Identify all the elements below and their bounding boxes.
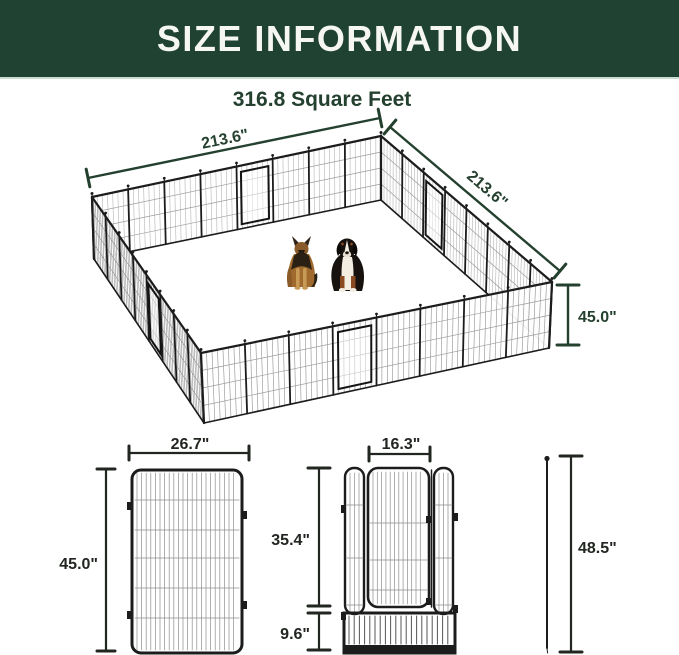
door-height-label: 35.4" xyxy=(271,532,310,549)
bernese-mountain-dog-icon xyxy=(331,239,364,293)
door-panel-front-view xyxy=(341,468,458,653)
bottom-panel-height-label: 9.6" xyxy=(280,626,310,643)
size-information-diagram: 316.8 Square Feet 213.6" 213.6" 45.0" 26… xyxy=(0,0,679,655)
stake-height-label: 48.5" xyxy=(578,540,617,557)
detail-dimension-lines xyxy=(97,446,582,652)
panel-front-view xyxy=(127,470,247,653)
overview-depth-dimension-label: 213.6" xyxy=(463,168,510,212)
german-shepherd-icon xyxy=(287,236,317,290)
door-width-label: 16.3" xyxy=(382,436,421,453)
ground-stake xyxy=(544,456,549,653)
area-title: 316.8 Square Feet xyxy=(233,88,412,111)
panel-width-label: 26.7" xyxy=(171,436,210,453)
overview-height-dimension-label: 45.0" xyxy=(578,309,617,326)
panel-height-label: 45.0" xyxy=(59,556,98,573)
